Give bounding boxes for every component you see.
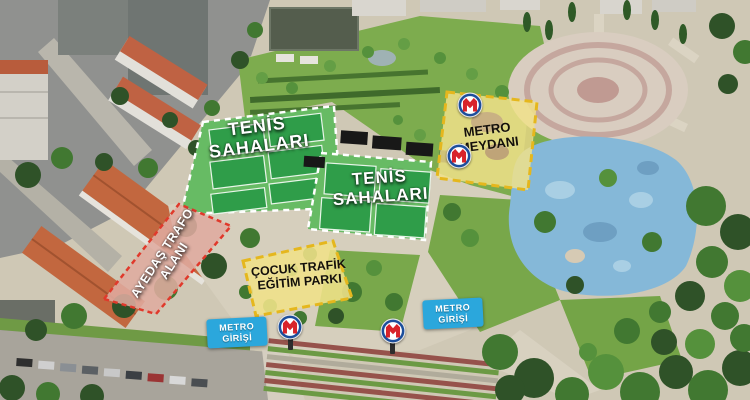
metro-entrance-left-badge: METRO GİRİŞİ <box>206 316 267 348</box>
aerial-photo-background <box>0 0 750 400</box>
tennis-courts-center <box>308 153 431 240</box>
metro-entrance-left-line2: GİRİŞİ <box>222 332 253 344</box>
metro-entrance-right-line2: GİRİŞİ <box>438 313 469 325</box>
metro-square-highlight <box>437 92 537 190</box>
metro-logo-icon <box>457 92 483 118</box>
metro-entrance-right-badge: METRO GİRİŞİ <box>422 297 483 329</box>
aerial-park-photo: TENİS SAHALARI TENİS SAHALARI METRO MEYD… <box>0 0 750 400</box>
metro-logo-icon <box>277 314 303 340</box>
metro-logo-icon <box>380 318 406 344</box>
metro-logo-icon <box>446 143 472 169</box>
